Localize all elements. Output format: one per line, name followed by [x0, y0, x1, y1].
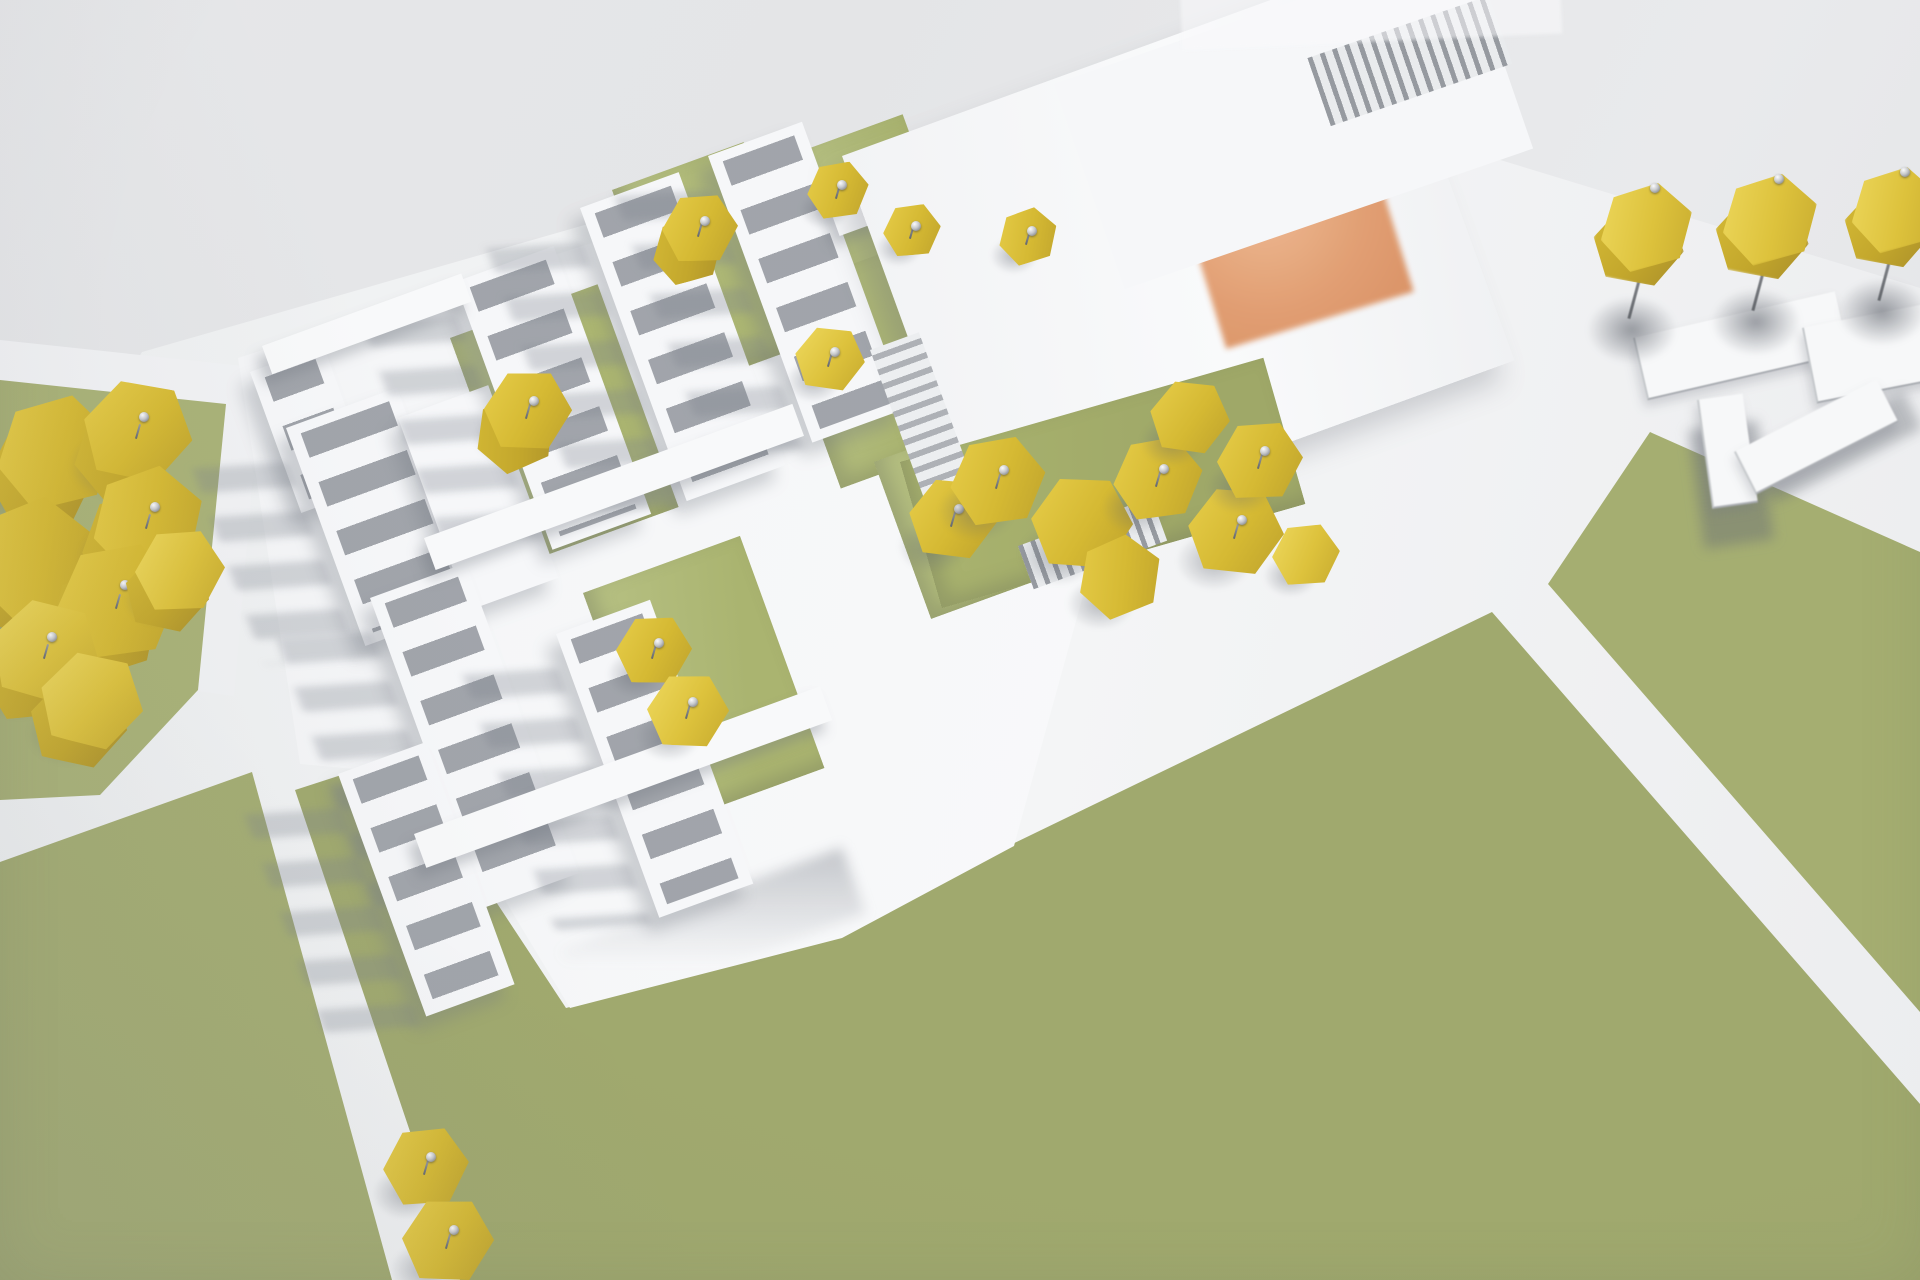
- tree-pin: [449, 1225, 459, 1235]
- tree-pin: [654, 638, 664, 648]
- lollipop-tree-shadow: [1568, 282, 1696, 378]
- tree-pin: [999, 465, 1009, 475]
- render-root: [0, 0, 1920, 1280]
- lollipop-tree-shadow: [1818, 264, 1920, 360]
- tree-pin: [150, 502, 160, 512]
- lollipop-pin: [1900, 167, 1910, 177]
- tree-pin: [700, 216, 710, 226]
- tree-pin: [911, 221, 921, 231]
- tree-pin: [529, 396, 539, 406]
- tree-pin: [830, 347, 840, 357]
- model-photo-stage: Aerial photograph of a white architectur…: [0, 0, 1920, 1280]
- lollipop-pin: [1774, 174, 1784, 184]
- lollipop-tree-shadow: [1692, 274, 1820, 370]
